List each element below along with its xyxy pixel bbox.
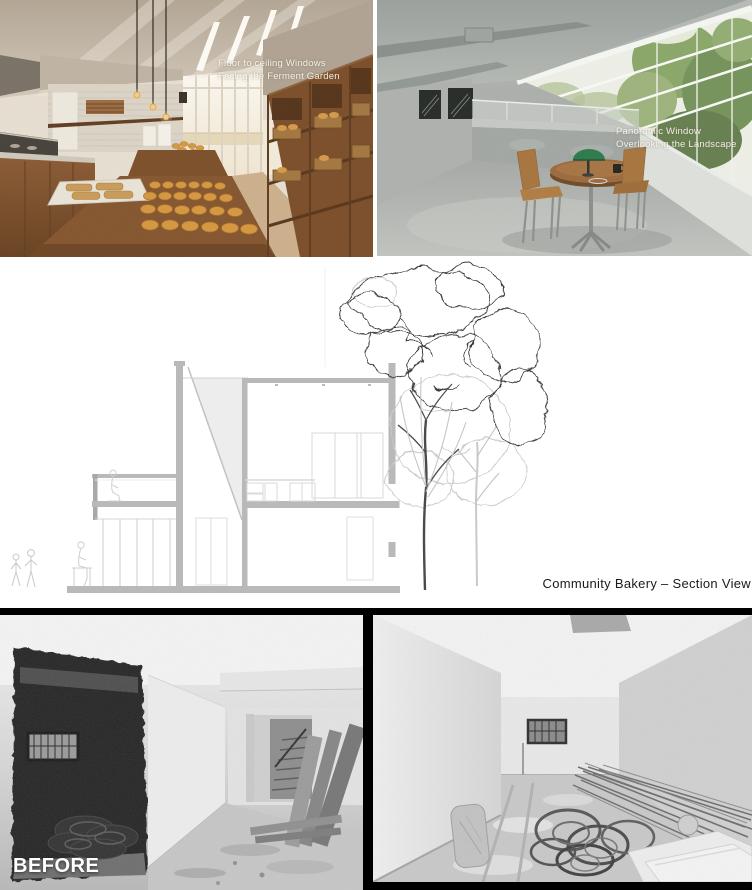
- photo-before-left: BEFORE: [0, 615, 363, 890]
- bakery-annotation: Floor to ceiling Windows Facing the Ferm…: [218, 58, 340, 83]
- render-seating-interior: Panoramic Window Overlooking the Landsca…: [377, 0, 752, 256]
- section-drawing-area: Community Bakery – Section View: [0, 257, 752, 608]
- ground-line: [67, 586, 400, 593]
- section-drawing: [0, 257, 752, 608]
- bakery-annotation-line1: Floor to ceiling Windows: [218, 58, 340, 71]
- before-photo-left-image: [0, 615, 363, 890]
- bakery-render-image: [0, 0, 373, 257]
- seating-annotation: Panoramic Window Overlooking the Landsca…: [616, 126, 737, 151]
- before-photo-right-image: [373, 615, 752, 882]
- bakery-annotation-line2: Facing the Ferment Garden: [218, 71, 340, 84]
- presentation-board: Floor to ceiling Windows Facing the Ferm…: [0, 0, 752, 890]
- before-photos-strip: BEFORE: [0, 608, 752, 890]
- photo-before-right: [373, 615, 752, 882]
- seating-annotation-line1: Panoramic Window: [616, 126, 737, 139]
- seating-annotation-line2: Overlooking the Landscape: [616, 139, 737, 152]
- render-bakery-interior: Floor to ceiling Windows Facing the Ferm…: [0, 0, 373, 257]
- before-label: BEFORE: [13, 855, 99, 878]
- section-view-label: Community Bakery – Section View: [543, 576, 751, 591]
